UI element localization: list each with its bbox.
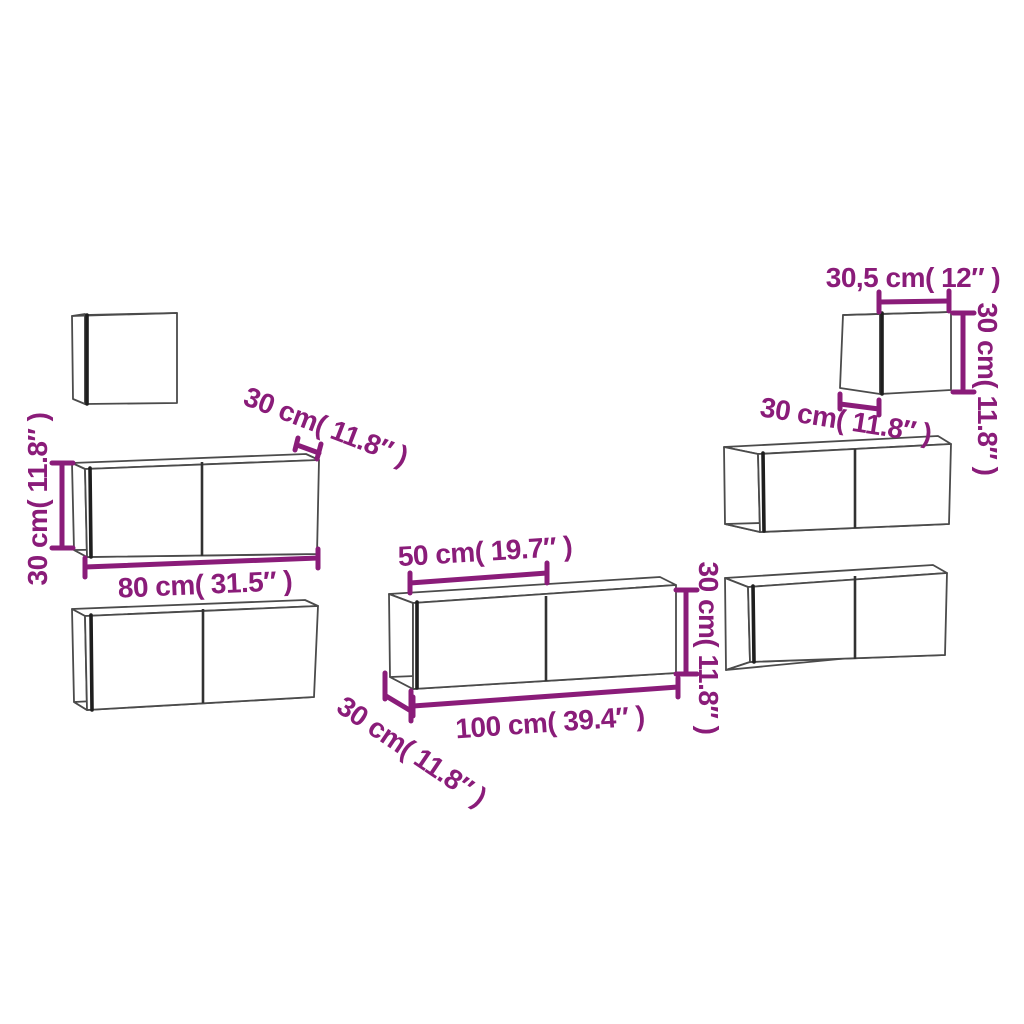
cabinet-side-face	[389, 594, 413, 689]
dim-label-left-width: 80 cm( 31.5″ )	[117, 565, 293, 604]
dim-left-height: 30 cm( 11.8″ )	[22, 413, 73, 586]
dim-label-small-height: 30 cm( 11.8″ )	[972, 303, 1003, 476]
dim-label-middle-height: 30 cm( 11.8″ )	[693, 562, 724, 735]
dim-line	[410, 573, 547, 583]
cabinet-front-face	[85, 606, 318, 710]
cabinet-side-face	[72, 314, 85, 404]
dim-label-middle-width: 100 cm( 39.4″ )	[454, 700, 645, 744]
dim-label-left-height: 30 cm( 11.8″ )	[22, 413, 53, 586]
dim-small-height: 30 cm( 11.8″ )	[953, 303, 1003, 476]
cabinet-side-face	[725, 578, 750, 670]
cabinet-square-top-right	[840, 312, 951, 394]
dim-middle-door-width: 50 cm( 19.7″ )	[397, 531, 573, 593]
dimension-diagram: 30 cm( 11.8″ ) 80 cm( 31.5″ ) 30 cm( 11.…	[0, 0, 1024, 1024]
dim-middle-height: 30 cm( 11.8″ )	[676, 562, 724, 735]
cabinet-wide-left-upper	[72, 454, 319, 557]
diagram-canvas: 30 cm( 11.8″ ) 80 cm( 31.5″ ) 30 cm( 11.…	[0, 0, 1024, 1024]
cabinet-front-face	[413, 585, 676, 689]
dim-line	[297, 445, 319, 453]
dim-line	[879, 301, 949, 302]
cabinet-wide-left-lower	[72, 600, 318, 710]
cabinet-door-edge	[90, 468, 91, 557]
dim-line	[386, 696, 411, 711]
cabinet-door-edge	[763, 453, 764, 531]
cabinet-front-face	[748, 573, 947, 662]
cabinet-square-top-left	[72, 313, 177, 404]
cabinet-door-edge	[91, 615, 92, 710]
dim-middle-width: 100 cm( 39.4″ )	[413, 678, 678, 744]
cabinet-wide-middle	[389, 577, 676, 689]
cabinet-front-face	[880, 312, 951, 394]
cabinet-side-face	[724, 447, 760, 532]
cabinet-wide-right-upper	[724, 436, 951, 532]
cabinet-front-face	[85, 313, 177, 404]
cabinet-door-edge	[753, 586, 754, 662]
dim-label-small-width: 30,5 cm( 12″ )	[826, 262, 1001, 293]
cabinet-side-face	[840, 314, 880, 394]
cabinet-wide-right-lower	[725, 565, 947, 670]
